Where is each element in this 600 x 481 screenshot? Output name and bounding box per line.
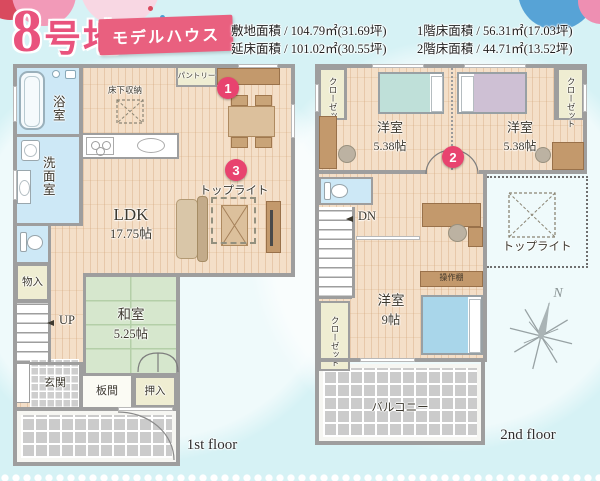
- sliding-door: [356, 236, 420, 240]
- wall: [13, 64, 17, 466]
- sink-icon: [137, 138, 165, 153]
- dining-chair: [255, 137, 272, 148]
- balcony-label: バルコニー: [360, 402, 440, 415]
- desk: [319, 116, 337, 169]
- wall: [13, 134, 83, 137]
- wall: [479, 170, 587, 174]
- shower-icon: [52, 70, 60, 78]
- wall: [554, 64, 557, 120]
- wall: [344, 64, 347, 120]
- window: [315, 84, 319, 112]
- dining-chair: [231, 137, 248, 148]
- closet-label: クローゼット: [328, 77, 337, 111]
- window: [372, 64, 424, 68]
- floor1-staircase: [17, 303, 48, 362]
- dining-table: [228, 106, 275, 137]
- pillow-icon: [431, 76, 443, 112]
- pillow-icon: [461, 76, 474, 112]
- wall: [315, 441, 485, 445]
- washitsu-size-label: 5.25帖: [96, 328, 166, 342]
- bath-label: 浴室: [50, 87, 64, 129]
- entrance-label: 玄関: [36, 377, 74, 389]
- bedroom-b-label: 洋室: [485, 121, 555, 135]
- tv-board: [266, 201, 281, 253]
- up-label: UP: [54, 314, 80, 328]
- washroom-label: 洗面室: [40, 145, 54, 207]
- bathtub-icon: [19, 71, 45, 130]
- entrance-door-arc-icon: [114, 410, 178, 464]
- floor2-closet-right: クローゼット: [557, 68, 584, 120]
- window: [464, 64, 526, 68]
- numbered-marker-1: 1: [217, 77, 239, 99]
- shoe-cabinet: [16, 363, 30, 403]
- closet-label: クローゼット: [566, 77, 575, 111]
- north-label: N: [548, 286, 568, 301]
- compass-icon: [506, 300, 576, 372]
- dining-chair: [255, 95, 272, 106]
- window: [13, 86, 17, 122]
- desk: [552, 142, 584, 170]
- sofa-back: [197, 196, 208, 262]
- floor1-storage-box: 物入: [16, 264, 49, 301]
- second-floor-area-text: 2階床面積 / 44.71㎡(13.52坪): [417, 38, 573, 57]
- toplight-label-f1: トップライト: [196, 185, 272, 198]
- washitsu-label: 和室: [96, 308, 166, 323]
- study-desk: [422, 203, 481, 227]
- pantry-label: パントリー: [178, 72, 216, 80]
- oshiire-label: 押入: [145, 386, 166, 398]
- wall: [481, 362, 485, 445]
- toilet-icon: [20, 232, 27, 252]
- itanoma-label: 板間: [84, 385, 130, 397]
- wall: [83, 273, 295, 277]
- wall: [131, 376, 134, 409]
- wall: [13, 262, 51, 265]
- bed-blue: [421, 295, 483, 355]
- vanity-basin-icon: [17, 170, 31, 204]
- stool-icon: [338, 145, 356, 163]
- ldk-label: LDK: [96, 206, 166, 225]
- window: [291, 104, 295, 138]
- study-desk-return: [468, 227, 483, 247]
- skylight-outline: [211, 197, 256, 244]
- confetti-icon: [148, 6, 153, 11]
- toilet-icon: [324, 182, 331, 200]
- floor1-caption: 1st floor: [170, 437, 254, 454]
- floorplan-flyer: 8号地 モデルハウス 敷地面積 / 104.79㎡(31.69坪) 延床面積 /…: [0, 0, 600, 481]
- first-floor-area-text: 1階床面積 / 56.31㎡(17.03坪): [417, 20, 573, 39]
- up-arrow-icon: [47, 320, 54, 326]
- model-house-badge: モデルハウス: [98, 15, 233, 56]
- floor1-pantry-box: パントリー: [176, 66, 217, 87]
- balcony-door-opening: [360, 358, 415, 362]
- floor2-caption: 2nd floor: [486, 427, 570, 444]
- wall: [315, 170, 427, 174]
- bedroom-main-label: 洋室: [356, 294, 426, 309]
- bath-counter-icon: [65, 70, 76, 79]
- dn-label: DN: [353, 210, 381, 224]
- window: [583, 84, 587, 112]
- double-door-arc-icon: [136, 351, 180, 373]
- numbered-marker-3: 3: [225, 159, 247, 181]
- bedroom-a-size-label: 5.38帖: [355, 140, 425, 153]
- pillow-icon: [469, 299, 481, 353]
- closet-label: クローゼット: [330, 316, 339, 356]
- scallop-border: [0, 471, 600, 481]
- wall: [48, 226, 51, 364]
- numbered-marker-2: 2: [442, 146, 464, 168]
- washing-machine-icon: [21, 140, 40, 161]
- operation-shelf-label: 操作棚: [424, 274, 479, 283]
- sofa: [176, 199, 198, 259]
- bedroom-main-size-label: 9帖: [356, 314, 426, 328]
- dn-arrow-icon: [346, 216, 353, 222]
- bedroom-b-size-label: 5.38帖: [485, 140, 555, 153]
- bedroom-a-label: 洋室: [355, 121, 425, 135]
- ldk-size-label: 17.75帖: [96, 227, 166, 241]
- storage-label: 物入: [22, 277, 43, 289]
- bed-teal: [378, 72, 444, 114]
- underfloor-storage-label: 床下収納: [99, 86, 151, 95]
- floor1-oshiire-box: 押入: [134, 376, 176, 407]
- skylight-icon: [508, 192, 556, 238]
- bed-purple: [457, 72, 527, 114]
- toilet-icon: [27, 235, 43, 250]
- toplight-label-f2: トップライト: [499, 241, 575, 254]
- wall: [13, 300, 51, 303]
- wall: [315, 296, 352, 299]
- total-floor-area-text: 延床面積 / 101.02㎡(30.55坪): [231, 38, 387, 57]
- floor2-closet-left: クローゼット: [319, 68, 346, 120]
- site-area-text: 敷地面積 / 104.79㎡(31.69坪): [231, 20, 387, 39]
- stool-icon: [448, 224, 467, 242]
- wall: [83, 273, 86, 374]
- wall: [291, 64, 295, 277]
- toilet-icon: [331, 184, 348, 198]
- stove-icon: [86, 137, 114, 155]
- underfloor-storage-icon: [116, 99, 144, 124]
